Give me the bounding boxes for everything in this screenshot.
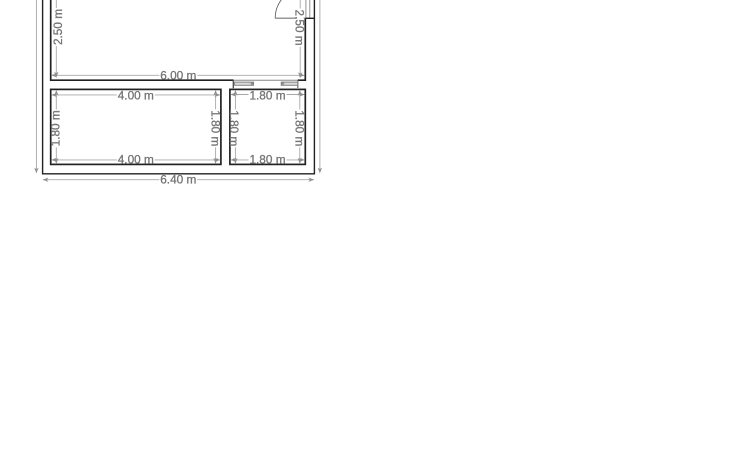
svg-text:1.80 m: 1.80 m xyxy=(249,153,285,167)
svg-text:1.80 m: 1.80 m xyxy=(48,110,62,146)
svg-text:4.00 m: 4.00 m xyxy=(118,153,154,167)
svg-text:1.80 m: 1.80 m xyxy=(293,110,307,146)
svg-text:2.50 m: 2.50 m xyxy=(51,9,65,45)
svg-text:4.00 m: 4.00 m xyxy=(118,89,154,103)
svg-text:6.00 m: 6.00 m xyxy=(160,69,196,83)
svg-text:1.80 m: 1.80 m xyxy=(227,110,241,146)
svg-text:2.50 m: 2.50 m xyxy=(293,10,307,46)
svg-text:1.80 m: 1.80 m xyxy=(249,89,285,103)
svg-text:6.40 m: 6.40 m xyxy=(160,173,196,187)
svg-text:1.80 m: 1.80 m xyxy=(209,110,223,146)
